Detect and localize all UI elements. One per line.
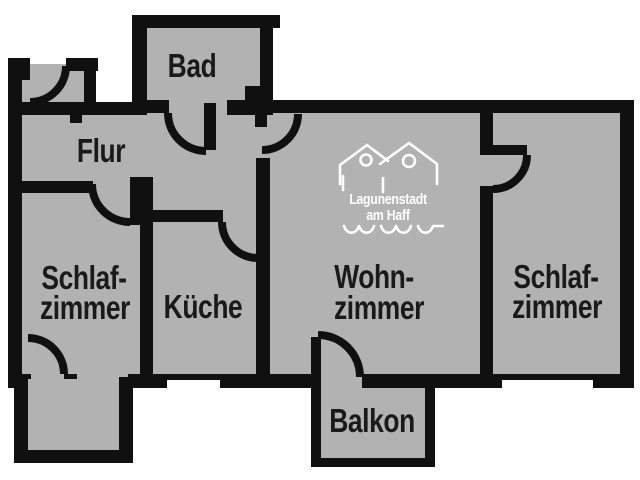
- wall-segment: [480, 145, 527, 155]
- wall-segment: [480, 113, 493, 147]
- wall-segment: [311, 337, 321, 379]
- wall-segment: [119, 377, 133, 463]
- wall-segment: [204, 103, 216, 150]
- room-label-bad: Bad: [168, 48, 217, 84]
- wall-segment: [8, 58, 22, 382]
- outside-strip: [167, 380, 220, 390]
- wall-segment: [14, 450, 133, 463]
- wall-segment: [311, 377, 321, 467]
- wall-segment: [130, 177, 144, 225]
- wall-segment: [8, 181, 93, 193]
- terrace-floor: [15, 377, 126, 458]
- outside-strip: [502, 380, 593, 390]
- logo-text-line1: Lagunenstadt: [349, 191, 427, 207]
- room-label-flur: Flur: [77, 133, 126, 169]
- room-label-wohnzimmer-2: zimmer: [334, 290, 425, 326]
- wall-segment: [260, 100, 634, 113]
- wall-segment: [311, 458, 435, 467]
- floor-plan-page: Bad Flur Schlaf- zimmer Küche Wohn- zimm…: [0, 0, 640, 480]
- wall-segment: [64, 374, 77, 379]
- wall-segment: [22, 64, 30, 80]
- logo-text-line2: am Haff: [366, 207, 410, 223]
- window: [502, 374, 593, 380]
- wall-segment: [593, 374, 634, 388]
- wall-segment: [132, 15, 280, 28]
- wall-segment: [620, 100, 634, 388]
- room-label-schlafzimmer-rechts-2: zimmer: [512, 289, 603, 325]
- wall-segment: [220, 374, 321, 388]
- window: [167, 374, 220, 380]
- wall-segment: [480, 186, 493, 374]
- wall-segment: [70, 115, 82, 123]
- wall-segment: [425, 377, 435, 467]
- wall-segment: [362, 374, 431, 388]
- floor-plan: Bad Flur Schlaf- zimmer Küche Wohn- zimm…: [0, 0, 640, 480]
- room-label-balkon: Balkon: [329, 403, 415, 439]
- wall-segment: [133, 100, 169, 113]
- wall-segment: [256, 158, 270, 374]
- room-label-kueche: Küche: [164, 289, 243, 325]
- wall-segment: [431, 374, 502, 388]
- wall-segment: [245, 86, 261, 102]
- wall-segment: [255, 113, 267, 127]
- wall-segment: [153, 210, 223, 222]
- wall-segment: [128, 374, 167, 388]
- room-label-schlafzimmer-links-2: zimmer: [40, 290, 131, 326]
- wall-segment: [260, 15, 273, 113]
